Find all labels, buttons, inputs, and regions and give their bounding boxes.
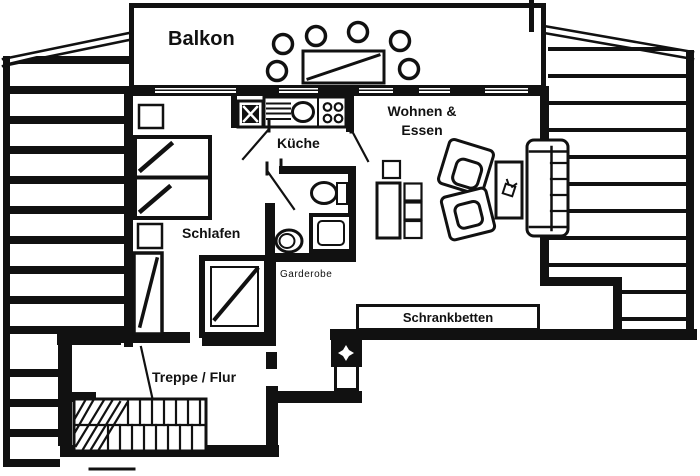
wc-icon — [276, 230, 302, 252]
wardrobe-icon — [134, 253, 162, 334]
wall-right-upper — [540, 86, 549, 144]
schlafen-label: Schlafen — [182, 226, 240, 241]
roof-notch — [548, 286, 613, 330]
wall-bath-bottom — [266, 253, 356, 262]
roof-hatch-left-upper — [3, 34, 129, 347]
kitchen-counter-icon — [264, 97, 346, 127]
dining-chairs-icon — [383, 161, 422, 238]
nightstand-icon — [138, 105, 163, 248]
wall-stair-stub — [66, 392, 96, 402]
wall-left — [124, 86, 133, 347]
schrankbetten-label: Schrankbetten — [359, 307, 537, 328]
dining-table-icon — [377, 183, 400, 238]
floor-plan: Schrankbetten — [0, 0, 700, 476]
washbasin-icon — [312, 183, 348, 205]
window — [155, 88, 236, 93]
wall-bedroom-bottom — [57, 330, 121, 345]
treppe-flur-label: Treppe / Flur — [152, 370, 236, 385]
wohnen-essen-line1: Wohnen & — [362, 102, 482, 121]
winder-steps — [74, 399, 127, 451]
closet-icon — [202, 258, 267, 335]
wall-notch-top — [540, 277, 622, 286]
armchair-icon — [437, 138, 494, 195]
wall-stub-top — [529, 0, 534, 32]
wall-bath-right — [348, 166, 356, 262]
window — [485, 88, 528, 93]
wall-nook-bottom — [277, 391, 362, 403]
wall-beds-cabinet: Schrankbetten — [356, 304, 540, 331]
wall-kitchen-stub — [346, 96, 354, 132]
roof-edge-left — [3, 56, 10, 467]
window — [279, 88, 318, 93]
wall-bedroom-bottom — [120, 332, 190, 343]
wall-kitchen-stub — [231, 96, 237, 128]
wall-notch-right — [613, 277, 622, 334]
wall-bath-top — [279, 166, 356, 174]
wall-flur-bottom — [60, 445, 279, 457]
sink-icon — [293, 103, 314, 122]
wall-bath-left — [265, 203, 275, 255]
wall-corridor-left — [266, 255, 276, 345]
armchair-icon — [440, 187, 495, 241]
wohnen-essen-label: Wohnen & Essen — [362, 102, 482, 140]
wall-flur-right — [266, 352, 277, 369]
shower-icon — [311, 215, 351, 251]
plant-icon — [503, 180, 517, 196]
window — [359, 88, 393, 93]
roof-edge-right — [686, 50, 694, 337]
staircase-icon — [74, 399, 206, 451]
chimney — [331, 338, 362, 367]
roof-hatch-left-lower — [3, 347, 60, 467]
fridge-icon — [238, 101, 263, 127]
coffee-table-icon — [496, 162, 522, 218]
garderobe-label: Garderobe — [280, 269, 332, 280]
chimney-base — [334, 364, 359, 391]
stove-icon — [324, 103, 343, 122]
kueche-label: Küche — [277, 136, 320, 151]
balkon-label: Balkon — [168, 28, 235, 50]
window — [419, 88, 450, 93]
double-bed-icon — [135, 137, 210, 218]
wohnen-essen-line2: Essen — [362, 121, 482, 140]
